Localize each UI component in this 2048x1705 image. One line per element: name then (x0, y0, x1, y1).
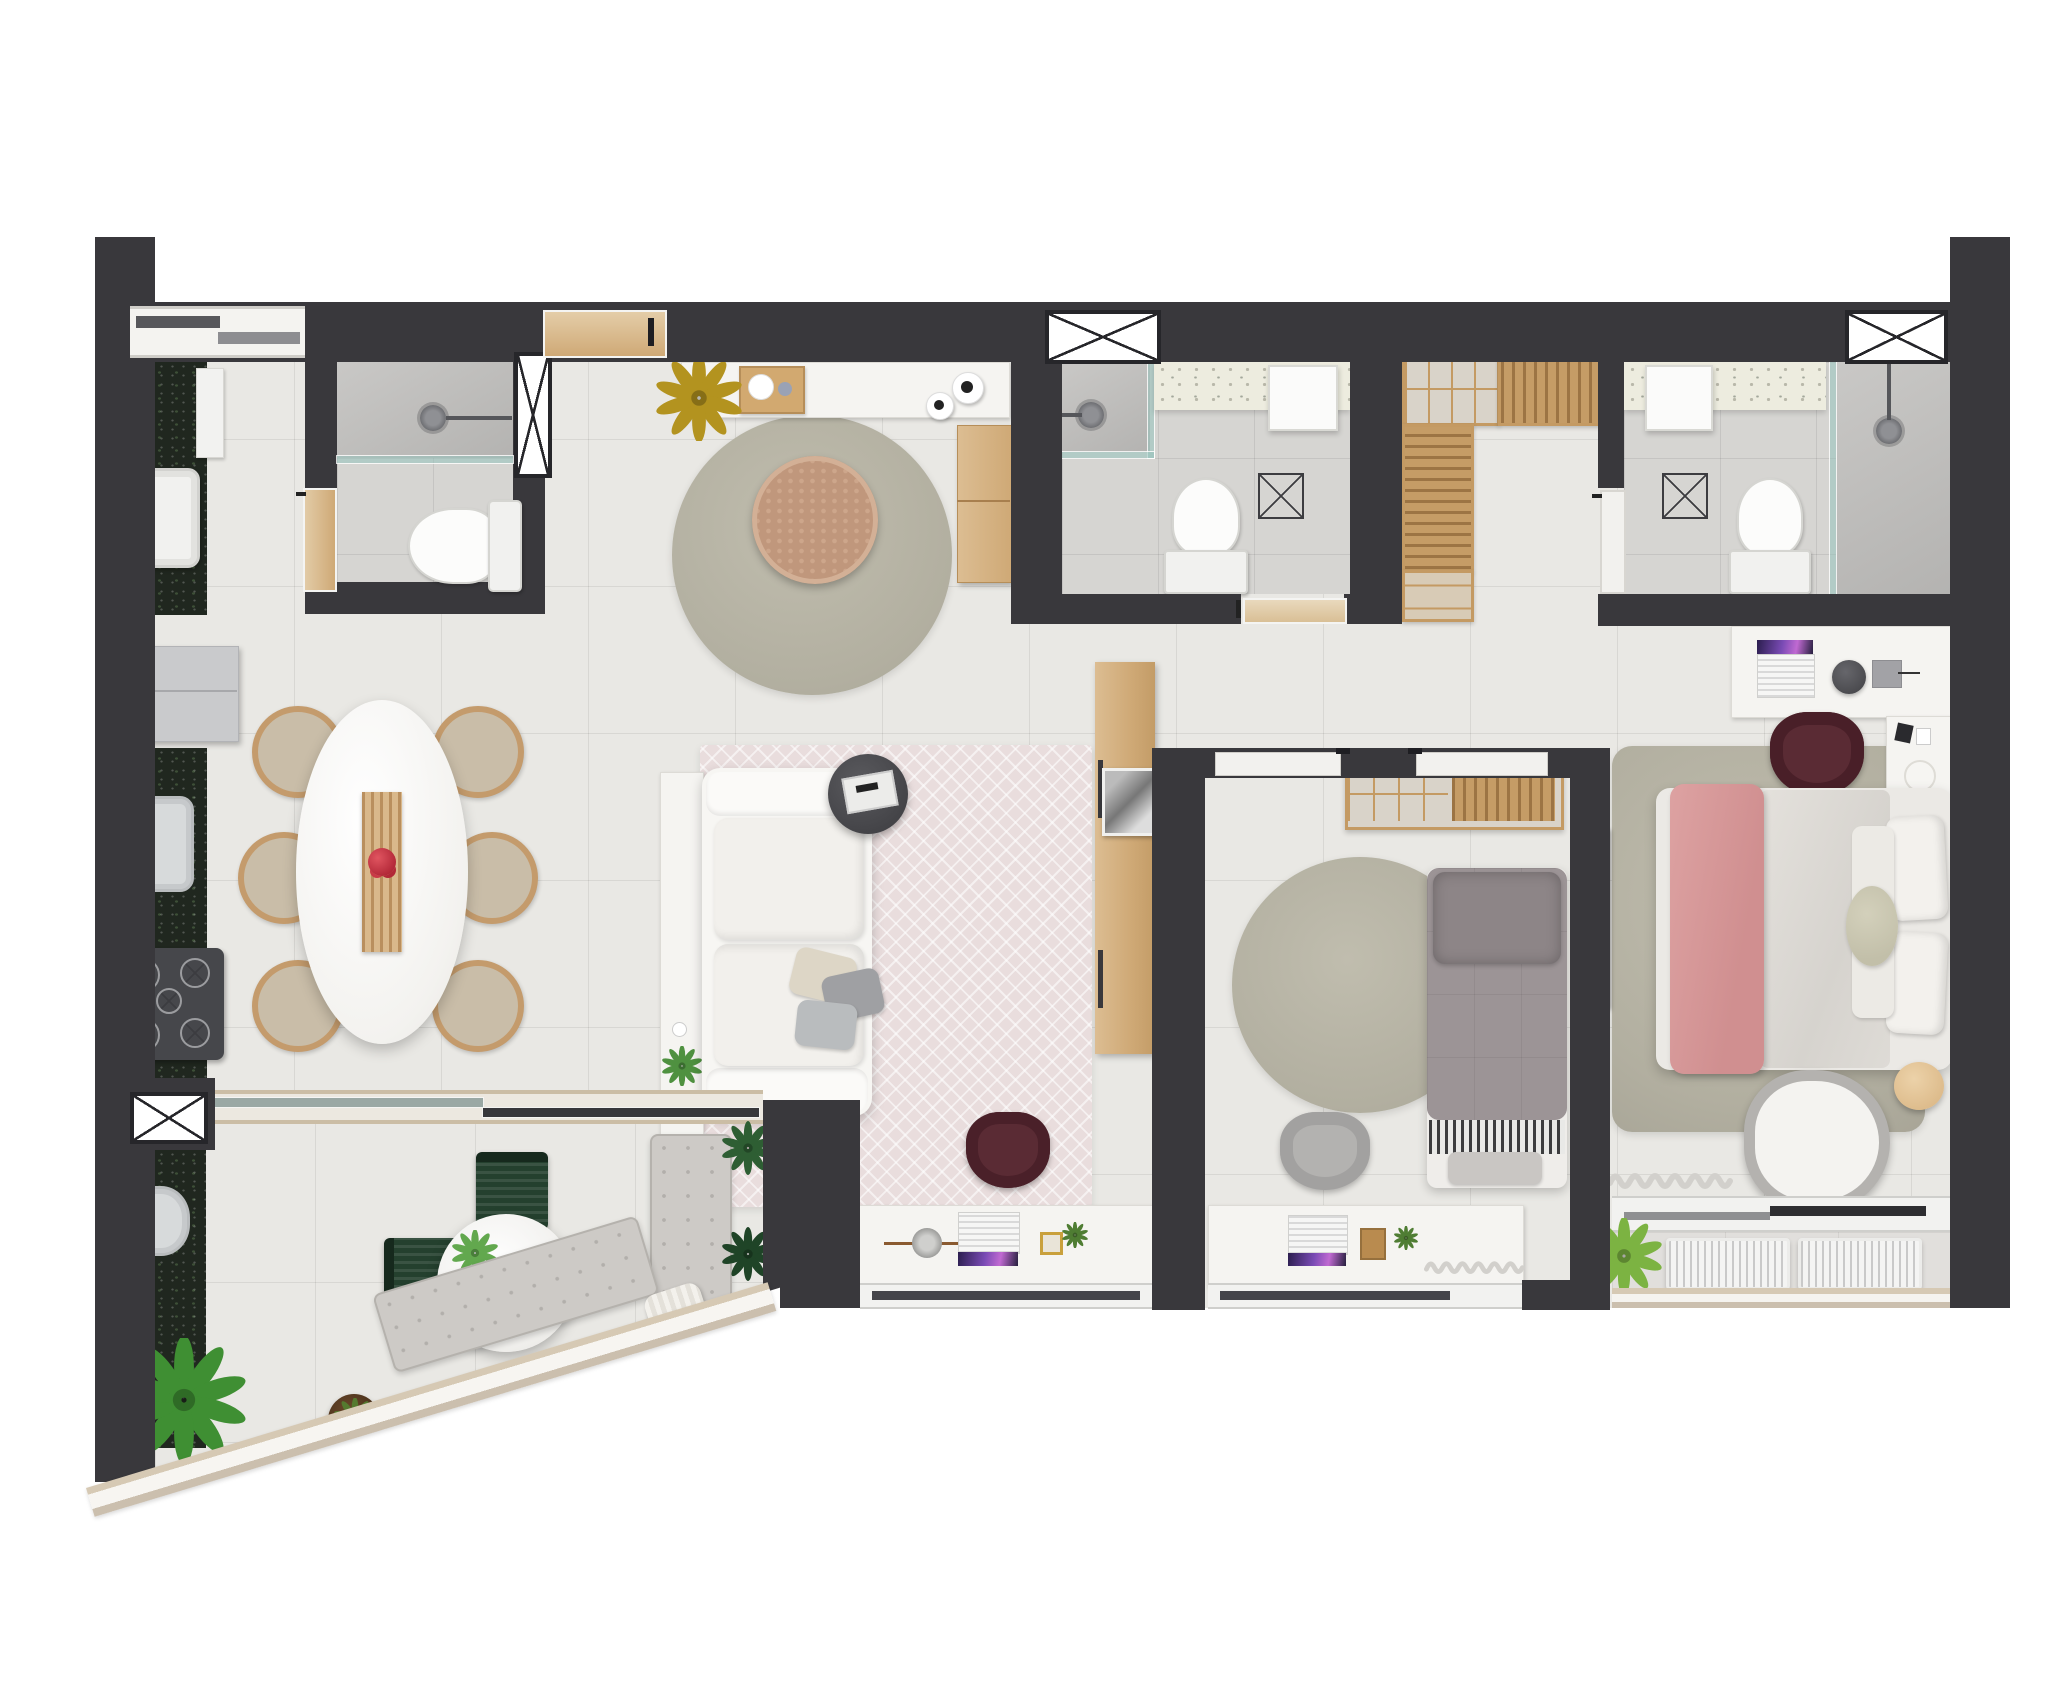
bath3-top-window (1845, 310, 1948, 364)
master-pink-runner (1670, 784, 1764, 1074)
bedroom2-wall-left (1152, 748, 1205, 1310)
master-sage-pillow (1846, 886, 1898, 966)
bath2-wall-bottom-b (1344, 594, 1402, 624)
balcony-glass-panel-2 (482, 1107, 760, 1118)
living-laptop-screen (958, 1252, 1018, 1266)
bath1-head2 (420, 405, 446, 431)
bath3-toilet-tank (1729, 550, 1811, 594)
bath1-door-handle-icon (296, 492, 306, 496)
bedroom2-laptop-screen (1288, 1253, 1346, 1266)
entry-plant (656, 355, 742, 441)
bath3-shower-glass (1830, 362, 1836, 594)
living-laptop-body (958, 1212, 1020, 1254)
canister-1-lid (934, 400, 944, 410)
bath3-floor-drain-icon (1662, 473, 1708, 519)
bedroom2-chair (1280, 1112, 1370, 1190)
bath3-sink (1645, 365, 1713, 431)
master-pen-tray (1872, 660, 1902, 688)
bath2-sink (1268, 365, 1338, 431)
living-window-glass (872, 1291, 1140, 1300)
master-pillow-1 (1885, 815, 1948, 922)
master-pen (1898, 672, 1920, 674)
ac-condenser-2 (1798, 1238, 1922, 1290)
perfume-white (1916, 728, 1931, 745)
console-cup (672, 1022, 687, 1037)
bedroom2-laptop-body (1288, 1215, 1348, 1255)
bath2-floor-drain-icon (1258, 473, 1304, 519)
master-window-glass-2 (1770, 1206, 1926, 1216)
bath3-door-handle-icon (1592, 494, 1602, 498)
bath2-toilet-tank (1164, 550, 1248, 594)
bedroom2-cactus (1394, 1226, 1418, 1250)
closet-tall-hanging-unit (1402, 424, 1474, 572)
wood-wardrobe-panel (1095, 662, 1155, 1054)
bath1-glass2 (337, 456, 513, 463)
bath3-shower-floor (1836, 362, 1950, 594)
bath3-shower-head-icon (1876, 418, 1902, 444)
master-pillow-2 (1885, 931, 1948, 1036)
bedroom2-notebook (1360, 1228, 1386, 1260)
canister-2-lid (961, 381, 973, 393)
tv-wall-block (763, 1100, 860, 1308)
bath2-wall-left (1011, 362, 1062, 624)
desk-gold-frame (1040, 1232, 1063, 1255)
desk-decor-disc (912, 1228, 942, 1258)
master-laptop-body (1757, 654, 1815, 698)
fruit-bowl (368, 848, 396, 876)
bath1-window (514, 352, 552, 478)
bath2-wall-right (1350, 362, 1402, 624)
wardrobe-photo (1102, 768, 1156, 836)
window-sill-seg (1522, 1280, 1570, 1310)
bedroom2-pillow (1433, 872, 1561, 964)
bath1-arm2 (446, 416, 512, 420)
bath1-bowl2 (408, 508, 498, 584)
console-plant (662, 1046, 702, 1086)
sofa-back-cushion-1 (714, 818, 864, 940)
master-balcony-rail (1612, 1288, 1950, 1308)
bath3-shower-arm (1887, 362, 1891, 420)
floor-plan-canvas (0, 0, 2048, 1705)
bath2-shower-arm (1062, 413, 1082, 417)
wardrobe-handle-2 (1098, 950, 1103, 1008)
bath2-toilet-bowl (1172, 478, 1240, 556)
bedroom2-foot-pillow (1448, 1152, 1542, 1184)
burner-2 (180, 958, 210, 988)
wall-left (95, 237, 155, 1482)
bedroom2-slider-door (1215, 752, 1341, 776)
bath2-wall-bottom-a (1011, 594, 1241, 624)
master-laptop-screen (1757, 640, 1813, 654)
burner-5 (180, 1018, 210, 1048)
entry-door-handle-icon (648, 318, 654, 346)
bath1-door (303, 488, 337, 592)
balcony-glass-panel-1 (210, 1097, 484, 1108)
closet-drawer-unit (1402, 570, 1474, 622)
master-wall-left (1570, 748, 1610, 1310)
bath3-toilet-bowl (1737, 478, 1803, 556)
wall-stub-top-right (1950, 237, 2010, 307)
service-slider-panel-2 (218, 332, 300, 344)
wall-right (1950, 302, 2010, 1308)
living-desk-chair (966, 1112, 1050, 1188)
master-side-table (1894, 1062, 1944, 1110)
master-slider-door (1416, 752, 1548, 776)
bath3-wall-bottom (1598, 594, 1950, 626)
sofa-pillow-gray-2 (794, 999, 858, 1051)
service-slider-panel-1 (136, 316, 220, 328)
entry-wood-bench (957, 425, 1012, 583)
master-stool (1832, 660, 1866, 694)
entry-bench-seam (957, 500, 1010, 502)
tray-cup-gray (778, 382, 792, 396)
kitchen-pass-window (130, 1092, 208, 1144)
master-armchair (1744, 1070, 1890, 1212)
master-curtain (1602, 1168, 1742, 1190)
master-slider-handle-icon (1408, 748, 1422, 754)
bath2-door-handle-icon (1236, 600, 1241, 618)
master-chair (1770, 712, 1864, 796)
bedroom2-striped-blanket (1429, 1120, 1565, 1154)
desk-plant (1062, 1222, 1088, 1248)
bedroom2-slider-handle-icon (1336, 748, 1350, 754)
bath1-tank2 (488, 500, 522, 592)
bedroom2-curtain (1424, 1256, 1528, 1276)
tray-cup-white (748, 374, 774, 400)
burner-3 (156, 988, 182, 1014)
rattan-pouf (752, 456, 878, 584)
bath2-top-window (1045, 310, 1161, 364)
bath3-door (1600, 490, 1626, 594)
bath2-door (1243, 598, 1347, 624)
bedroom2-window-glass (1220, 1291, 1450, 1300)
ac-condenser-1 (1666, 1238, 1790, 1290)
bath2-shower-glass-h (1062, 452, 1154, 458)
service-cabinet (196, 368, 224, 458)
bath2-shower-floor (1062, 362, 1150, 452)
bath3-wall-left (1598, 362, 1624, 488)
